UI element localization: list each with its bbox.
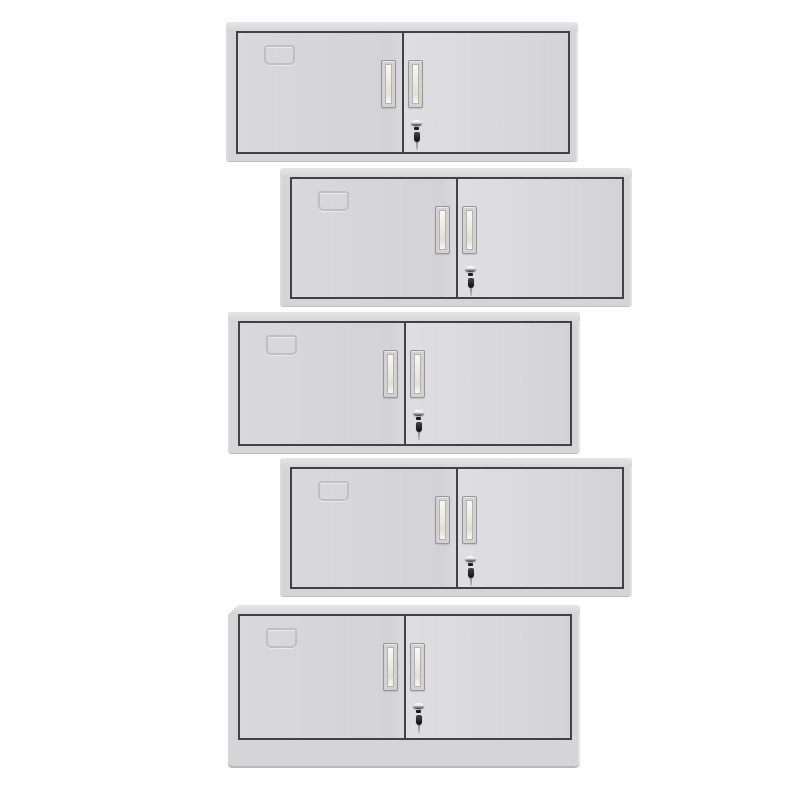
- right-door-handle: [462, 206, 477, 254]
- right-door-handle: [410, 643, 425, 691]
- key-ring-wire-icon: [470, 288, 472, 296]
- cabinet-top-panel: [280, 458, 632, 467]
- right-door-handle: [462, 496, 477, 544]
- key-in-lock-icon: [416, 422, 422, 432]
- keyhole-lock: [465, 266, 476, 296]
- left-door: [238, 33, 403, 152]
- label-card-slot: [266, 335, 297, 355]
- keyhole-icon: [416, 417, 421, 420]
- left-door: [240, 323, 405, 444]
- keyhole-icon: [416, 710, 421, 713]
- key-ring-wire-icon: [416, 142, 418, 150]
- door-frame: [290, 467, 624, 589]
- door-frame: [238, 614, 572, 740]
- right-door-handle: [408, 60, 423, 108]
- keyhole-icon: [468, 273, 473, 276]
- cabinet-top-panel: [228, 605, 580, 614]
- handle-recess: [439, 210, 446, 250]
- cabinet-1: [226, 22, 578, 162]
- keyhole-lock: [465, 556, 476, 586]
- right-door: [457, 469, 622, 587]
- cabinet-4: [280, 458, 632, 597]
- label-card-slot: [266, 628, 297, 648]
- door-frame: [236, 31, 570, 154]
- cabinet-5: [228, 605, 580, 768]
- lock-cylinder-icon: [465, 266, 476, 272]
- keyhole-icon: [414, 127, 419, 130]
- key-ring-wire-icon: [470, 578, 472, 586]
- label-card-slot: [318, 191, 349, 211]
- keyhole-lock: [411, 120, 422, 150]
- handle-recess: [387, 354, 394, 394]
- handle-recess: [385, 64, 392, 104]
- door-frame: [238, 321, 572, 446]
- cabinet-side-foot: [226, 158, 248, 178]
- cabinet-side-foot: [612, 593, 632, 607]
- left-door-handle: [383, 350, 398, 398]
- right-door: [405, 616, 570, 738]
- keyhole-lock: [413, 703, 424, 733]
- lock-cylinder-icon: [413, 703, 424, 709]
- left-door-handle: [435, 206, 450, 254]
- label-card-slot: [318, 481, 349, 501]
- lock-cylinder-icon: [465, 556, 476, 562]
- left-door: [292, 179, 457, 297]
- handle-recess: [414, 354, 421, 394]
- left-door: [240, 616, 405, 738]
- cabinet-top-panel: [226, 22, 578, 31]
- left-door-handle: [383, 643, 398, 691]
- left-door-handle: [435, 496, 450, 544]
- handle-recess: [414, 647, 421, 687]
- handle-recess: [387, 647, 394, 687]
- handle-recess: [466, 210, 473, 250]
- right-door: [457, 179, 622, 297]
- handle-recess: [439, 500, 446, 540]
- lock-cylinder-icon: [411, 120, 422, 126]
- cabinet-side-foot: [612, 303, 632, 317]
- right-door-handle: [410, 350, 425, 398]
- right-door: [405, 323, 570, 444]
- keyhole-icon: [468, 563, 473, 566]
- key-ring-wire-icon: [418, 432, 420, 440]
- right-door: [403, 33, 568, 152]
- cabinet-3: [228, 312, 580, 454]
- key-ring-wire-icon: [418, 725, 420, 733]
- key-in-lock-icon: [414, 132, 420, 142]
- handle-recess: [412, 64, 419, 104]
- door-frame: [290, 177, 624, 299]
- key-in-lock-icon: [468, 278, 474, 288]
- cabinet-top-panel: [228, 312, 580, 321]
- lock-cylinder-icon: [413, 410, 424, 416]
- handle-recess: [466, 500, 473, 540]
- left-door: [292, 469, 457, 587]
- cabinet-2: [280, 168, 632, 307]
- keyhole-lock: [413, 410, 424, 440]
- key-in-lock-icon: [468, 568, 474, 578]
- key-in-lock-icon: [416, 715, 422, 725]
- left-door-handle: [381, 60, 396, 108]
- label-card-slot: [264, 45, 295, 65]
- product-photo-canvas: [0, 0, 800, 800]
- cabinet-top-panel: [280, 168, 632, 177]
